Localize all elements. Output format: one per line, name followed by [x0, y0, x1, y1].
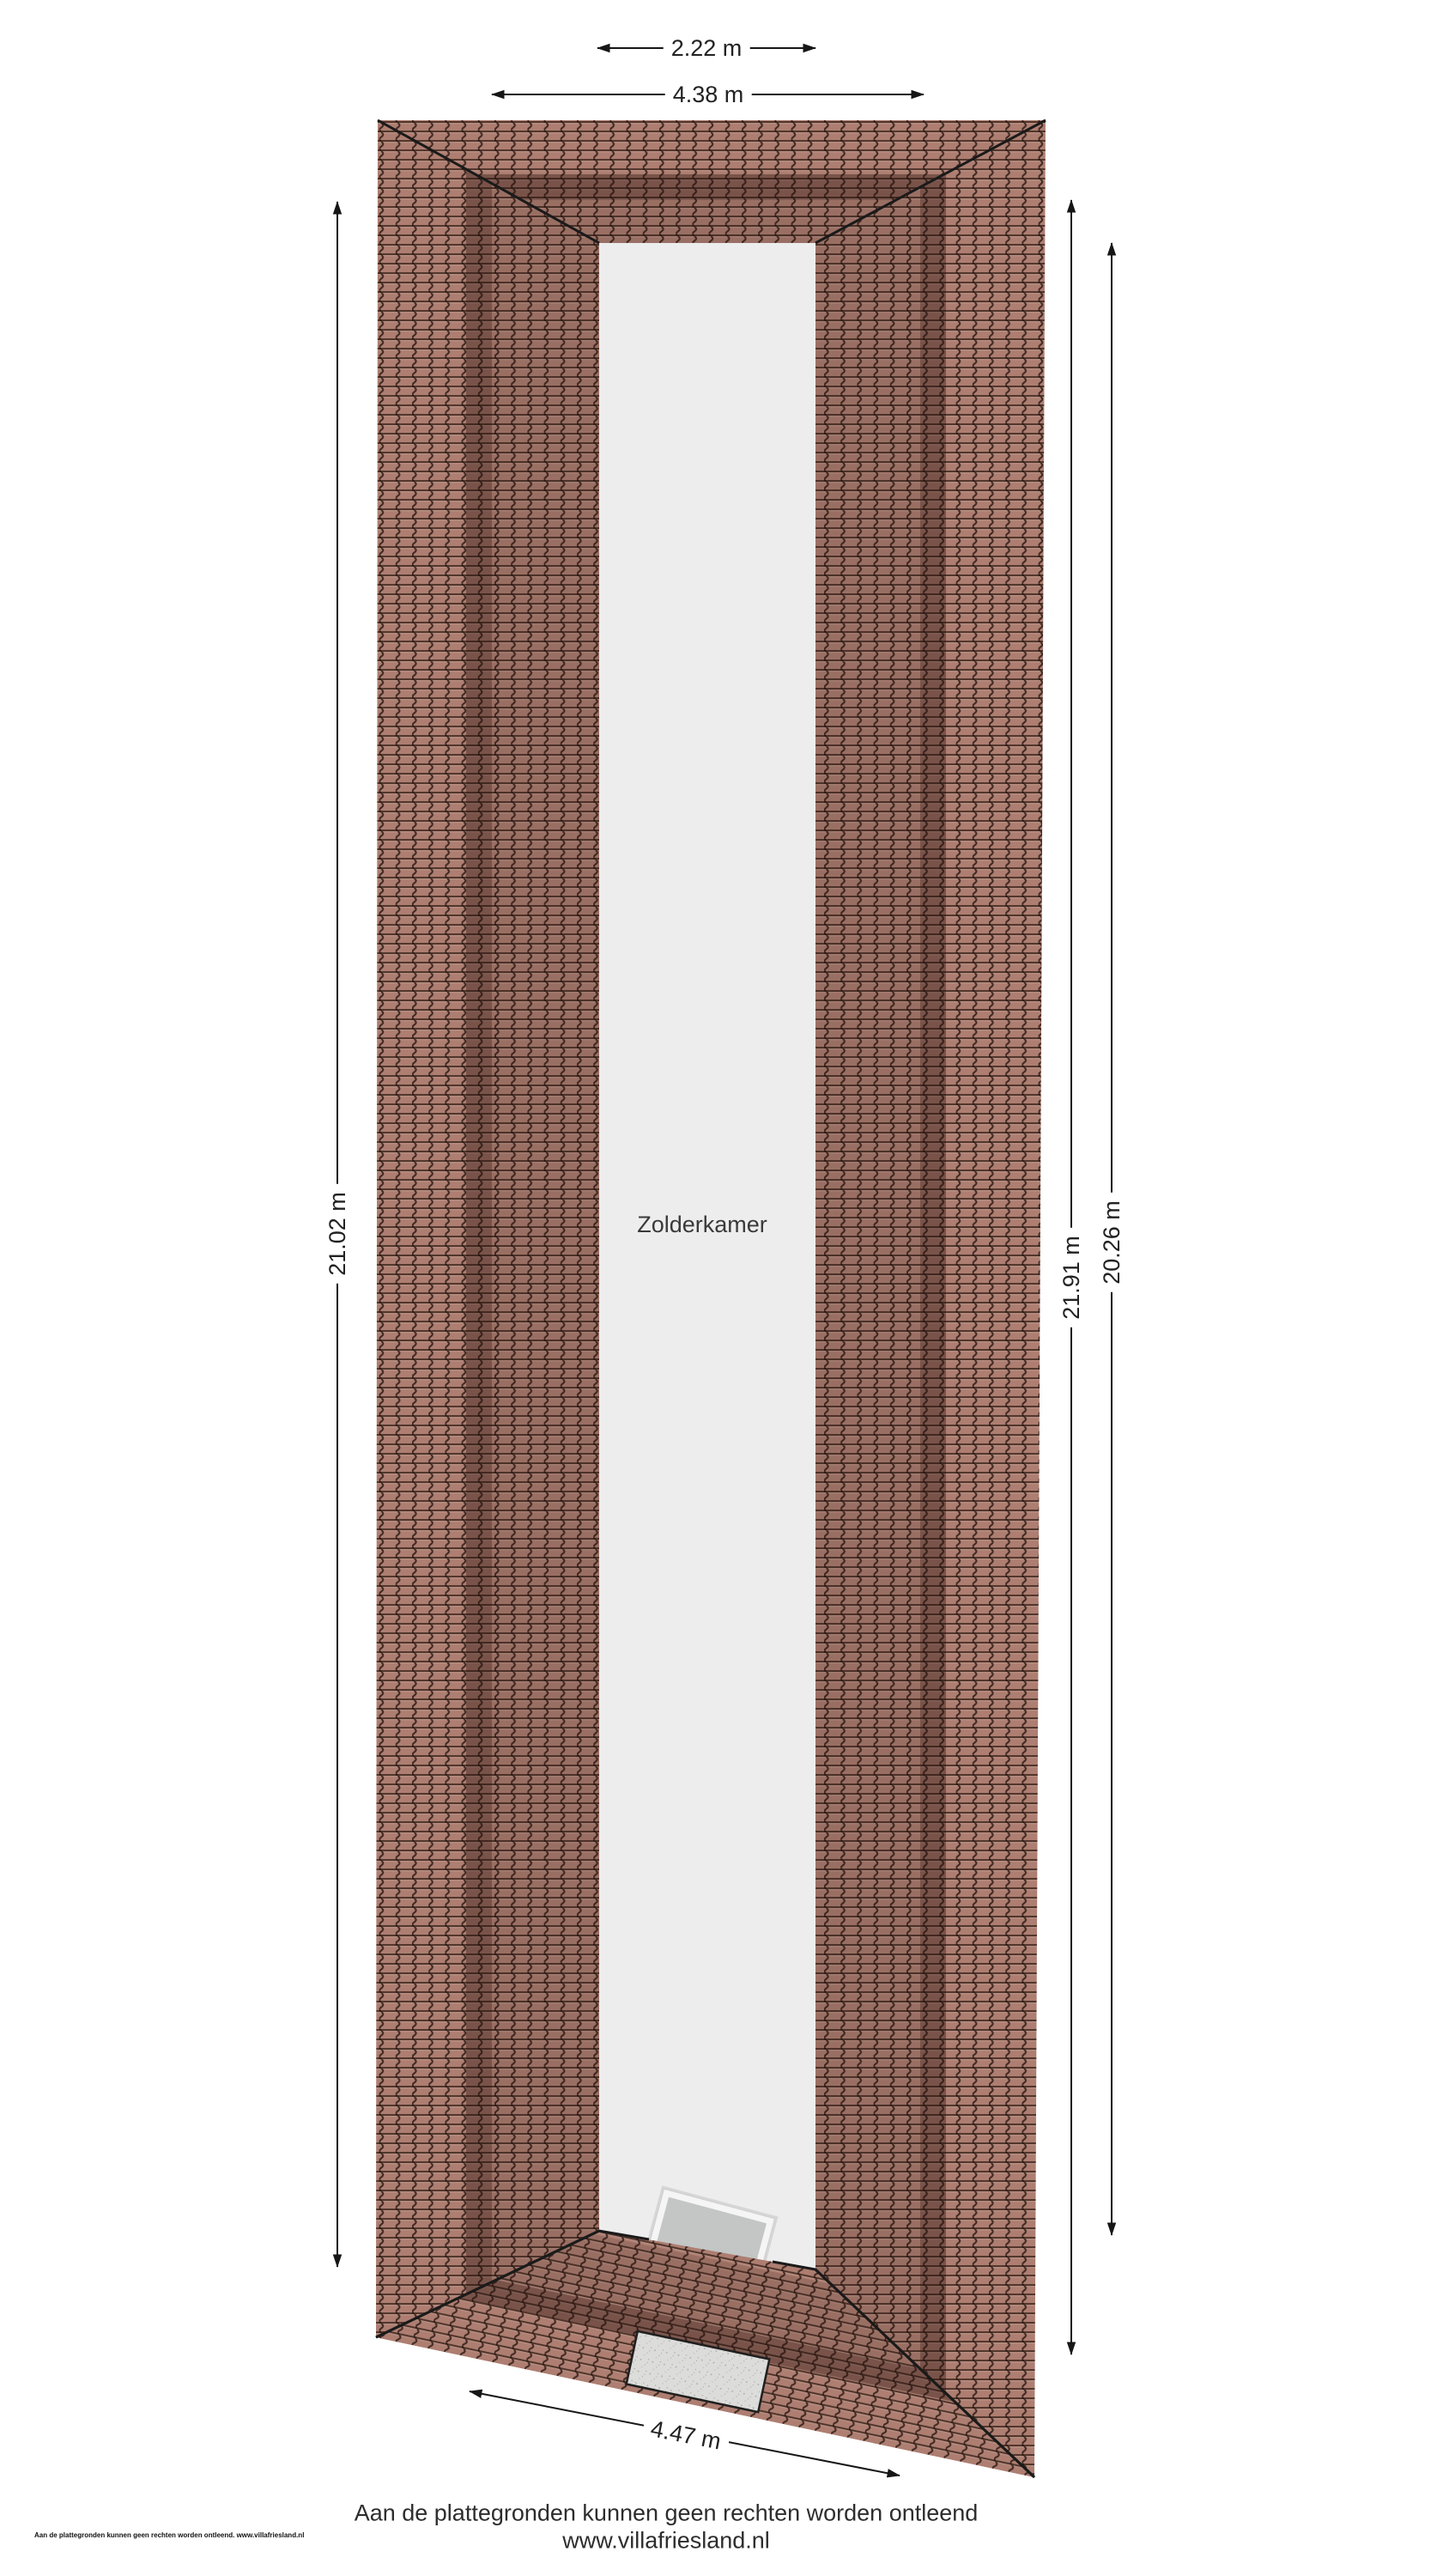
- dimension-label-top-inner: 2.22 m: [664, 36, 750, 60]
- room-label: Zolderkamer: [637, 1212, 767, 1236]
- attic-room-floor: [599, 243, 815, 2269]
- floorplan-drawing: [0, 0, 1449, 2576]
- floorplan-page: 2.22 m 4.38 m 21.02 m 21.91 m 20.26 m 4.…: [0, 0, 1449, 2576]
- footer-fineprint: Aan de plattegronden kunnen geen rechten…: [34, 2531, 304, 2539]
- roof-shading-left: [466, 120, 599, 2337]
- dimension-label-right-inner: 20.26 m: [1100, 1193, 1124, 1292]
- footer-disclaimer: Aan de plattegronden kunnen geen rechten…: [355, 2500, 979, 2527]
- dimension-label-left: 21.02 m: [325, 1184, 349, 1284]
- footer-website: www.villafriesland.nl: [562, 2528, 770, 2555]
- roof-shading-right: [815, 120, 946, 2477]
- dimension-label-top-outer: 4.38 m: [665, 82, 752, 106]
- dimension-label-right-outer: 21.91 m: [1059, 1228, 1083, 1327]
